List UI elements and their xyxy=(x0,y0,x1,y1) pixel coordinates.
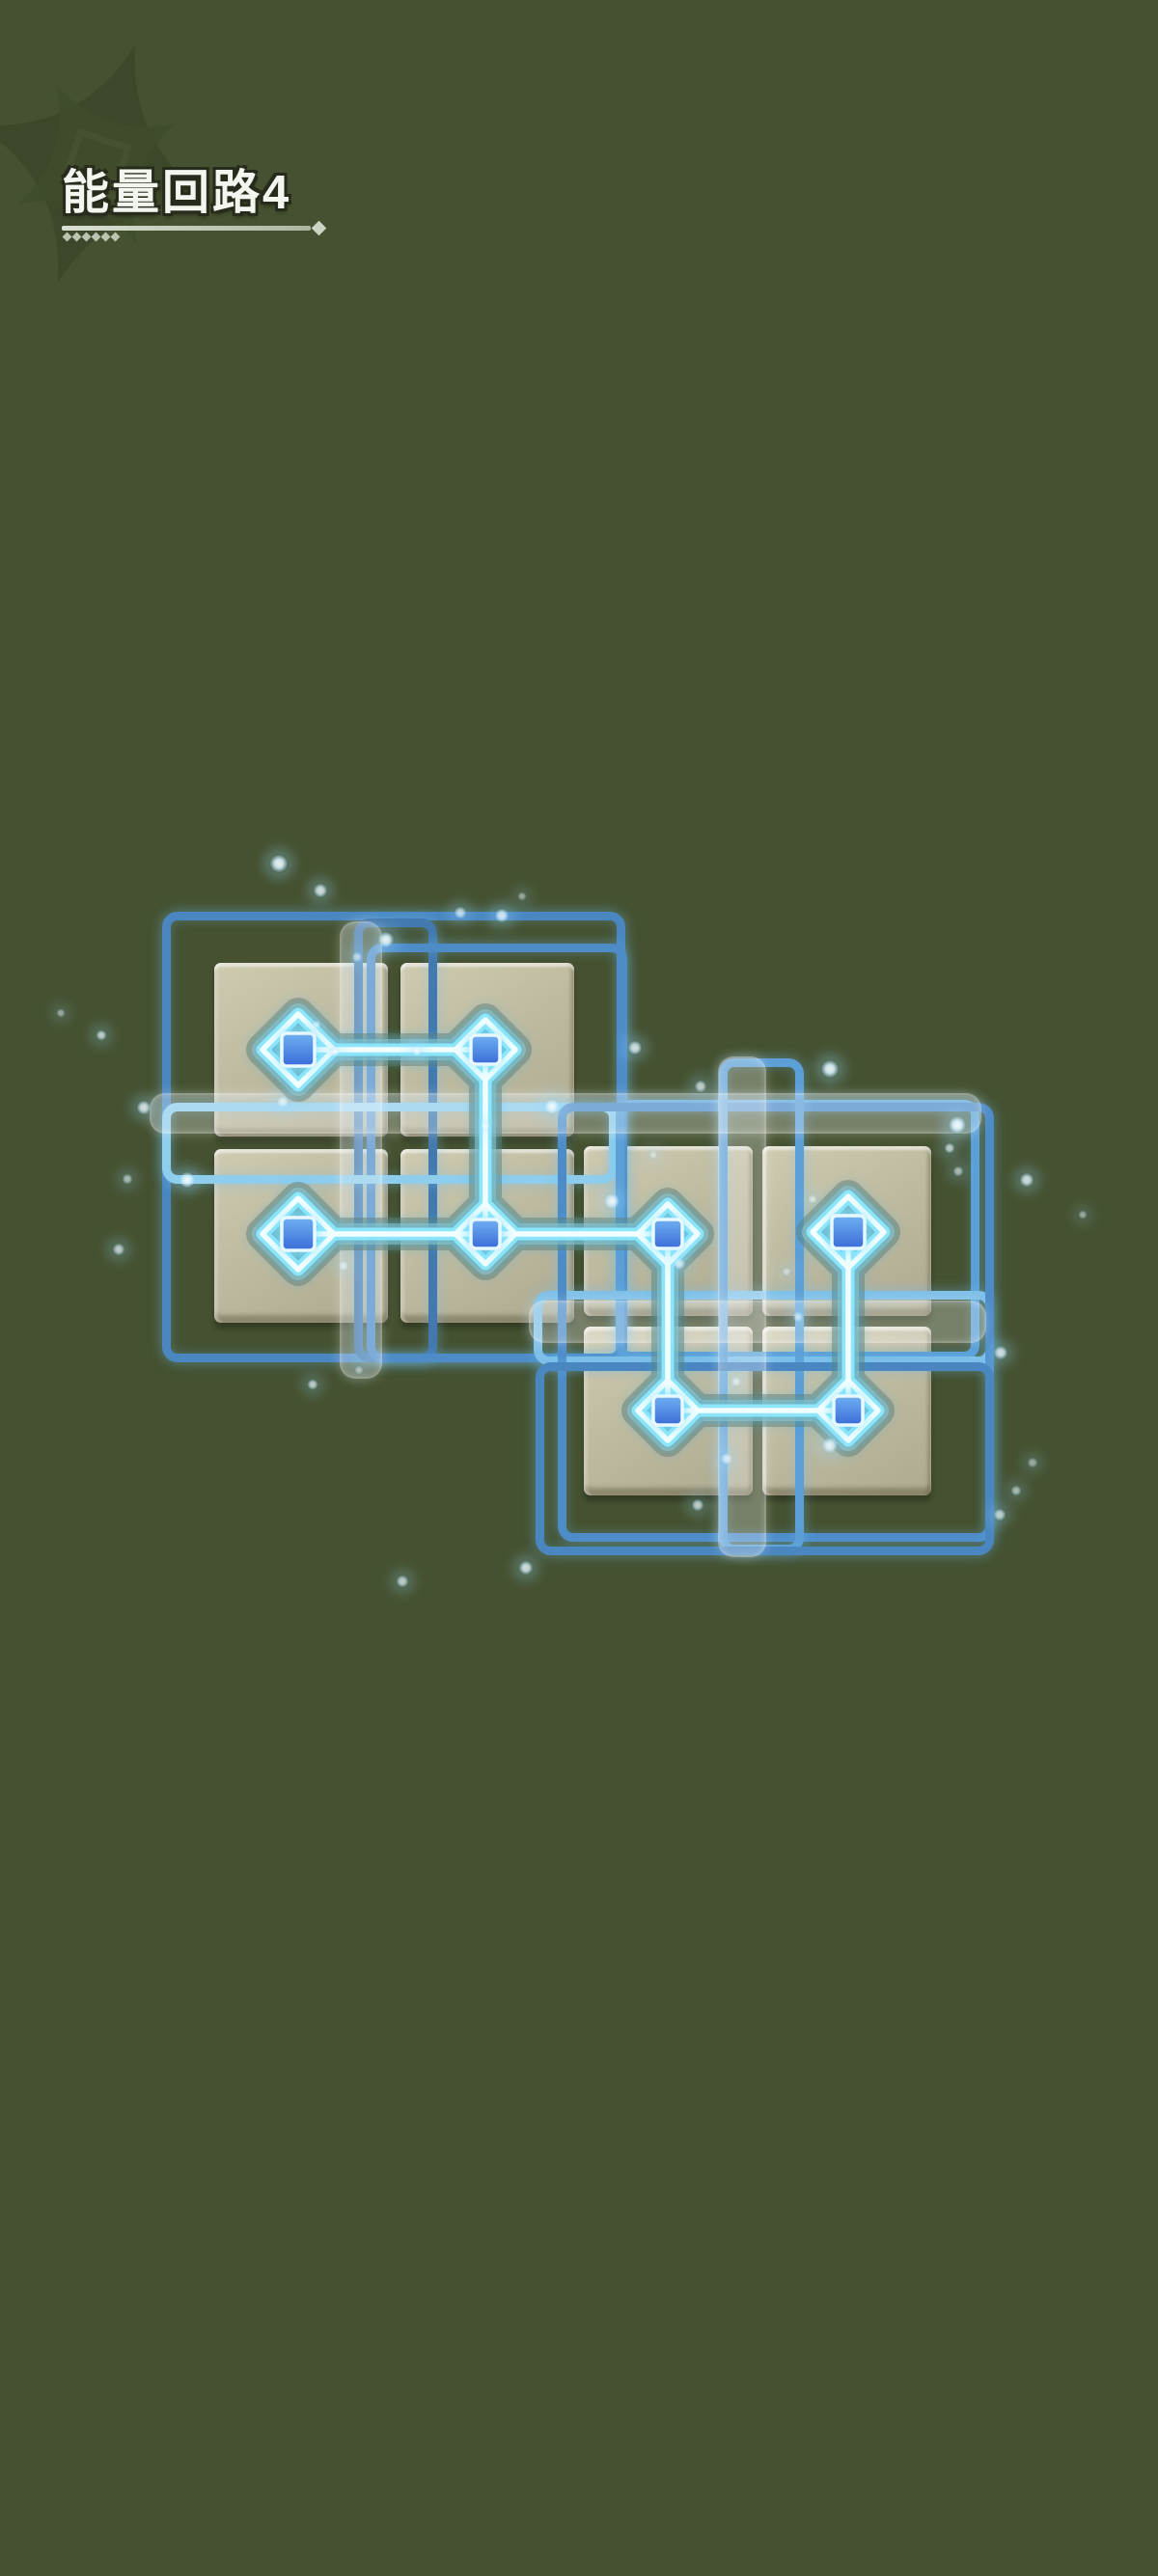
glow-particle xyxy=(269,854,289,873)
circuit-path xyxy=(262,1014,884,1440)
circuit-node xyxy=(653,1396,682,1425)
glow-particle xyxy=(948,1115,967,1135)
glow-particle xyxy=(1010,1485,1022,1496)
glow-particle xyxy=(731,1376,742,1387)
glow-particle xyxy=(691,1498,704,1512)
glow-particle xyxy=(1027,1457,1038,1468)
game-screen: 能量回路4 xyxy=(0,0,1158,2576)
glow-particle xyxy=(96,1029,107,1041)
glow-particle xyxy=(517,891,527,901)
glow-particle xyxy=(792,1311,804,1323)
glow-particle xyxy=(627,1040,643,1055)
glow-particle xyxy=(480,1120,491,1132)
glow-particle xyxy=(648,1150,658,1160)
glow-particle xyxy=(518,1560,534,1576)
glow-particle xyxy=(952,1165,964,1177)
circuit-node xyxy=(471,1035,500,1064)
glow-particle xyxy=(112,1243,125,1256)
glow-particle xyxy=(312,1020,321,1029)
glow-particle xyxy=(313,883,328,898)
glow-particle xyxy=(543,1098,561,1115)
glow-particle xyxy=(122,1173,133,1185)
glow-particle xyxy=(179,1171,196,1189)
glow-particle xyxy=(307,1379,318,1390)
glow-particle xyxy=(993,1508,1006,1521)
glow-particle xyxy=(396,1575,409,1588)
glow-particle xyxy=(782,1267,791,1276)
glow-particle xyxy=(354,1365,364,1375)
glow-particle xyxy=(1019,1172,1034,1188)
glow-particle xyxy=(603,1192,620,1210)
glow-particle xyxy=(821,1437,839,1454)
arrow-up-endpoint-node xyxy=(832,1216,865,1248)
glow-particle xyxy=(454,906,467,919)
glow-particle xyxy=(338,1260,349,1272)
circuit-node xyxy=(834,1396,863,1425)
glow-particle xyxy=(993,1345,1008,1360)
glow-particle xyxy=(808,1194,817,1204)
arrow-left-endpoint-node xyxy=(282,1033,315,1066)
glow-particle xyxy=(720,1452,733,1466)
glow-particle xyxy=(1078,1210,1088,1219)
circuit-node xyxy=(653,1219,682,1248)
glow-particle xyxy=(136,1100,152,1115)
glow-particle xyxy=(329,1046,341,1057)
circuit-node xyxy=(471,1219,500,1248)
glow-particle xyxy=(673,1257,686,1271)
circuit-svg xyxy=(0,0,1158,2576)
glow-particle xyxy=(411,1045,423,1056)
glow-particle xyxy=(377,931,395,948)
arrow-left-endpoint-node xyxy=(282,1218,315,1250)
glow-particle xyxy=(944,1142,955,1154)
glow-particle xyxy=(494,908,510,923)
glow-particle xyxy=(56,1008,66,1018)
glow-particle xyxy=(276,1095,289,1109)
glow-particle xyxy=(694,1080,707,1093)
glow-particle xyxy=(820,1059,840,1079)
glow-particle xyxy=(351,951,363,963)
